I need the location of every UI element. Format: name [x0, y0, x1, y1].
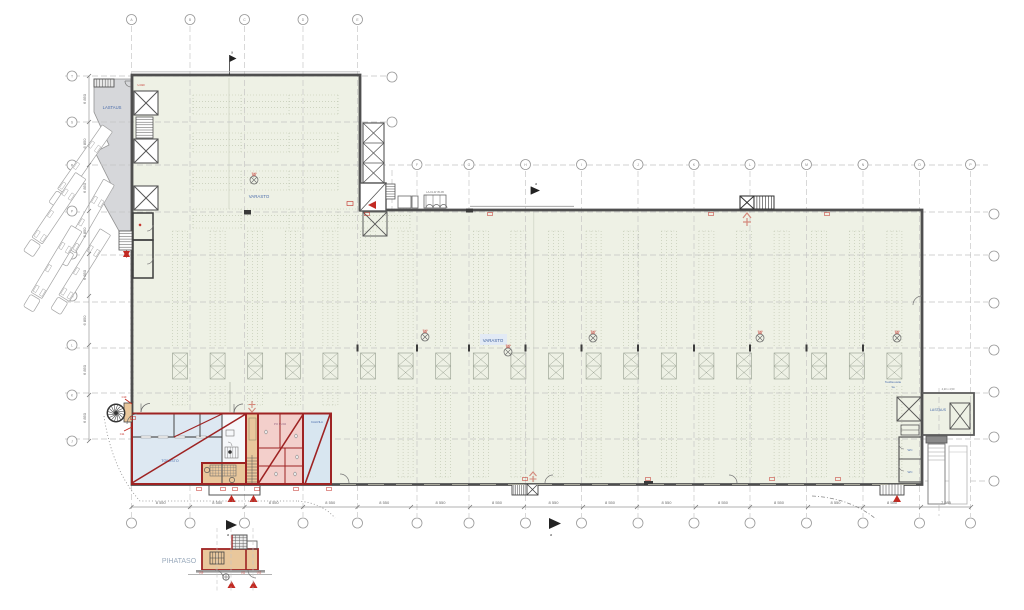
svg-text:8 550: 8 550 — [379, 500, 390, 505]
svg-text:U10: U10 — [199, 572, 204, 575]
svg-text:8 550: 8 550 — [774, 500, 785, 505]
svg-text:T: T — [71, 74, 73, 78]
svg-text:M: M — [805, 163, 808, 167]
svg-text:6 850: 6 850 — [82, 269, 87, 280]
svg-text:LASTAUS: LASTAUS — [930, 408, 947, 412]
svg-text:WC: WC — [908, 470, 914, 474]
svg-text:35dB: 35dB — [505, 345, 511, 347]
svg-text:KAHVILA: KAHVILA — [311, 420, 323, 424]
svg-text:6 850: 6 850 — [82, 412, 87, 423]
svg-text:a: a — [227, 533, 229, 537]
svg-text:O: O — [918, 163, 921, 167]
svg-text:8 550: 8 550 — [661, 500, 672, 505]
svg-text:8 550: 8 550 — [548, 500, 559, 505]
svg-text:8 550: 8 550 — [435, 500, 446, 505]
svg-text:L: L — [71, 343, 73, 347]
svg-text:6 850: 6 850 — [82, 93, 87, 104]
svg-text:a: a — [535, 182, 537, 186]
svg-text:U12: U12 — [257, 572, 262, 575]
svg-text:8 550: 8 550 — [887, 500, 898, 505]
svg-text:4,20 x 4,50: 4,20 x 4,50 — [942, 387, 955, 391]
svg-text:35dB: 35dB — [251, 173, 257, 175]
svg-text:C11: C11 — [120, 432, 125, 436]
svg-text:U11: U11 — [241, 572, 246, 575]
svg-text:35dB: 35dB — [894, 331, 900, 333]
svg-text:I: I — [581, 163, 582, 167]
svg-text:a: a — [231, 51, 233, 55]
svg-text:6 850: 6 850 — [82, 227, 87, 238]
svg-text:LASTAUS: LASTAUS — [103, 105, 122, 110]
svg-text:35dB: 35dB — [590, 331, 596, 333]
svg-text:6 850: 6 850 — [82, 138, 87, 149]
svg-text:1a: 1a — [891, 385, 895, 389]
svg-text:Teollisuustie: Teollisuustie — [885, 380, 902, 384]
svg-text:C10: C10 — [122, 395, 127, 399]
svg-text:VARASTO: VARASTO — [483, 338, 504, 343]
svg-text:J: J — [637, 163, 639, 167]
svg-text:8 550: 8 550 — [605, 500, 616, 505]
svg-text:a: a — [550, 533, 552, 537]
svg-text:6 850: 6 850 — [82, 315, 87, 326]
svg-text:35dB: 35dB — [757, 331, 763, 333]
svg-text:8 550: 8 550 — [492, 500, 503, 505]
svg-text:LA-01-W 35 dB: LA-01-W 35 dB — [426, 190, 444, 194]
svg-text:35dB: 35dB — [422, 330, 428, 332]
svg-text:7 685: 7 685 — [941, 500, 952, 505]
svg-text:6 850: 6 850 — [82, 182, 87, 193]
svg-text:F: F — [416, 163, 418, 167]
svg-text:PIHATASO: PIHATASO — [162, 558, 197, 565]
svg-text:G: G — [468, 163, 471, 167]
svg-text:8 550: 8 550 — [718, 500, 729, 505]
svg-text:J: J — [71, 439, 73, 443]
svg-text:WC: WC — [908, 448, 914, 452]
svg-text:6 850: 6 850 — [82, 364, 87, 375]
svg-text:L: L — [749, 163, 751, 167]
svg-text:PO LU02: PO LU02 — [274, 422, 287, 426]
svg-text:U-010: U-010 — [137, 83, 145, 87]
svg-text:8 550: 8 550 — [212, 500, 223, 505]
svg-text:8 550: 8 550 — [325, 500, 336, 505]
svg-text:VARASTO: VARASTO — [249, 194, 270, 199]
